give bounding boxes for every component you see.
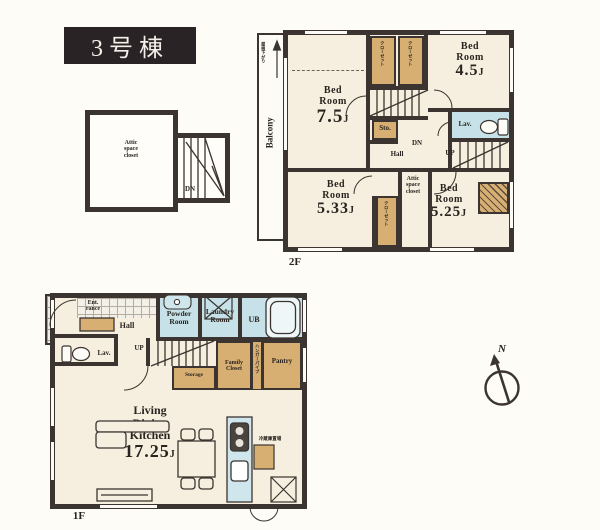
hall-ldk-door-arc bbox=[124, 366, 148, 390]
kitchen-sink bbox=[231, 461, 248, 481]
f2-toilet-tank bbox=[498, 119, 508, 135]
balcony-arrow-head bbox=[274, 41, 281, 50]
f2-lav-door-arc bbox=[438, 122, 452, 136]
f1-toilet-bowl bbox=[73, 348, 90, 361]
f2-bed525-door-arc bbox=[434, 172, 456, 194]
f1-kitchen-door-arc bbox=[250, 507, 278, 521]
dining-chair bbox=[199, 478, 213, 489]
fridge-x bbox=[271, 477, 296, 502]
f2-bed75-door-arc bbox=[346, 96, 366, 116]
f1-toilet-tank bbox=[62, 346, 71, 362]
dining-table bbox=[178, 441, 215, 477]
f2-toilet-bowl bbox=[481, 121, 498, 134]
plan-linework bbox=[0, 0, 600, 530]
f2-bed45-door-arc bbox=[434, 90, 452, 108]
dining-chair bbox=[181, 478, 195, 489]
porch-door-arc bbox=[50, 300, 76, 326]
compass-north-label: N bbox=[494, 344, 510, 356]
sofa-back bbox=[96, 421, 169, 432]
powder-sink-bowl bbox=[174, 299, 179, 304]
attic-stair-treads bbox=[184, 138, 205, 198]
dining-chair bbox=[199, 429, 213, 440]
stove-burner bbox=[236, 427, 244, 435]
sofa-seat bbox=[96, 432, 126, 448]
f2-bed533-door-arc bbox=[354, 176, 372, 194]
compass-needle-head bbox=[490, 354, 500, 366]
stove-burner bbox=[236, 439, 244, 447]
shoe-cabinet bbox=[80, 318, 114, 331]
kitchen-cupboard bbox=[254, 445, 274, 469]
floorplan-canvas: 3号棟 Attic space closet DN Balcony 屋根下がり bbox=[0, 0, 600, 530]
bathtub-inner bbox=[271, 302, 296, 334]
f1-stair-diagonal bbox=[151, 341, 214, 366]
compass-needle bbox=[495, 358, 509, 402]
dining-chair bbox=[181, 429, 195, 440]
washer-x bbox=[205, 296, 232, 319]
compass bbox=[486, 354, 519, 405]
